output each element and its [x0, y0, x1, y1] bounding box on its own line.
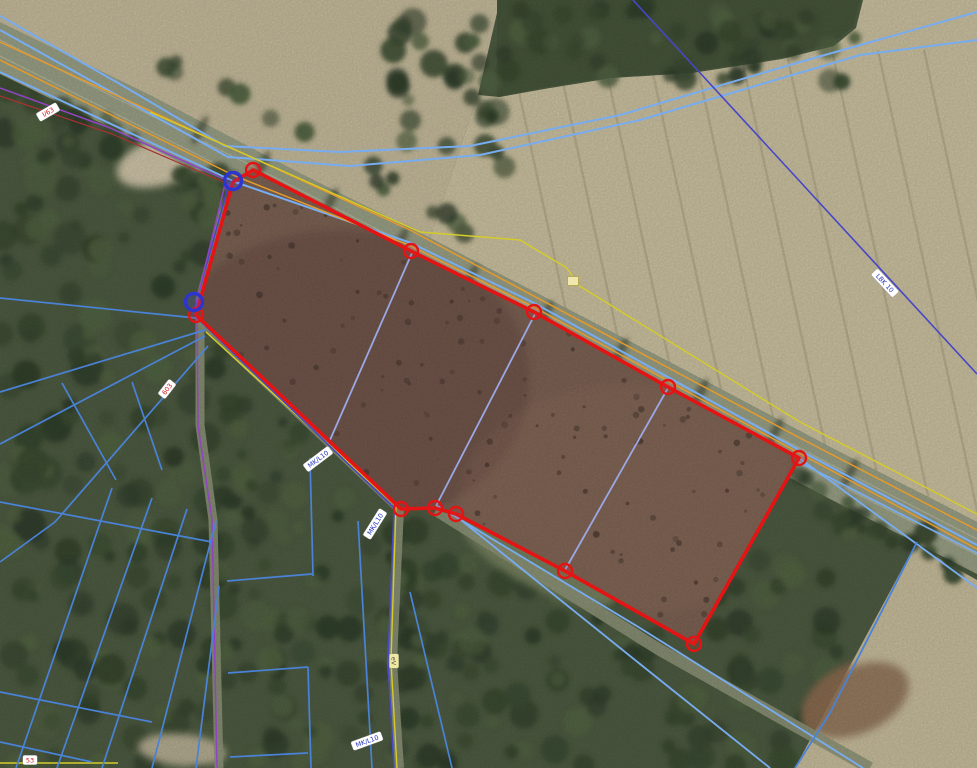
parcel-vertex-marker[interactable] — [449, 507, 463, 521]
parcel-vertex-marker[interactable] — [246, 163, 260, 177]
utility-point-marker — [568, 277, 579, 286]
utility-label: eV — [389, 654, 399, 669]
map-viewport[interactable]: I/63603MK/L10MK/L10MK/L10LBK 10eV53 — [0, 0, 977, 768]
parcel-vertex-marker[interactable] — [394, 502, 408, 516]
parcel-vertex-marker[interactable] — [558, 564, 572, 578]
parcel-vertex-marker[interactable] — [404, 244, 418, 258]
snap-point-marker[interactable] — [225, 173, 242, 190]
edge-label-text: 53 — [26, 756, 34, 764]
parcel-vertex-marker[interactable] — [527, 305, 541, 319]
parcel-vertex-marker[interactable] — [428, 501, 442, 515]
photo-grain — [0, 0, 977, 768]
parcel-vertex-marker[interactable] — [792, 451, 806, 465]
aerial-map[interactable]: I/63603MK/L10MK/L10MK/L10LBK 10eV53 — [0, 0, 977, 768]
parcel-vertex-marker[interactable] — [687, 637, 701, 651]
parcel-vertex-marker[interactable] — [661, 380, 675, 394]
snap-point-marker[interactable] — [186, 294, 203, 311]
utility-label-text: eV — [390, 657, 398, 666]
edge-label: 53 — [23, 755, 38, 765]
